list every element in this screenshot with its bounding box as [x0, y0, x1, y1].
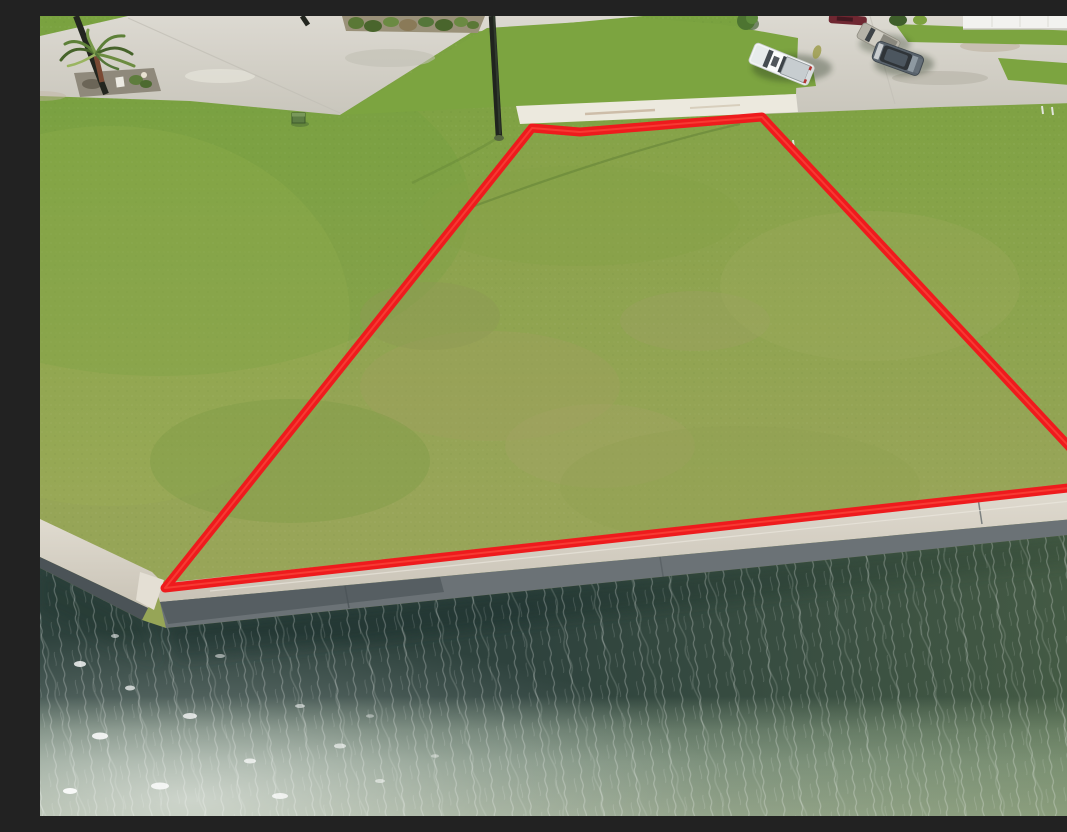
glint — [431, 754, 439, 758]
glint — [272, 793, 288, 799]
house-roofline — [963, 16, 1067, 29]
island-shrub — [348, 17, 364, 29]
glint — [92, 733, 108, 740]
glint — [375, 779, 385, 783]
glint — [215, 654, 225, 658]
glint — [151, 783, 169, 790]
box-top — [292, 113, 305, 117]
glint — [366, 714, 374, 718]
pole-base — [494, 135, 504, 141]
small-tree — [737, 16, 759, 30]
grass-patch — [420, 166, 740, 266]
island-rock — [399, 19, 417, 31]
glint — [111, 634, 119, 638]
island-shrub — [454, 17, 468, 27]
house-wall — [963, 16, 1067, 29]
bed-ornament — [115, 76, 124, 87]
pavement-stain — [345, 49, 435, 67]
dark-green-patch — [150, 399, 430, 523]
glint — [74, 661, 86, 667]
island-shrub — [383, 17, 399, 27]
pavement-highlight — [185, 69, 255, 83]
survey-stake — [1052, 107, 1053, 115]
island-shrub — [364, 20, 382, 32]
glint — [63, 788, 77, 794]
bed-shrub — [140, 80, 152, 88]
glint — [244, 759, 256, 764]
glint — [295, 704, 305, 708]
glint — [334, 744, 346, 749]
island-shrub — [467, 21, 479, 29]
island-shrub — [435, 19, 453, 31]
survey-stake — [1042, 106, 1043, 114]
glint — [183, 713, 197, 719]
landscape-island — [342, 16, 485, 33]
glint — [125, 686, 135, 691]
bed-flower-pot — [141, 72, 147, 78]
aerial-photo-canvas — [40, 16, 1067, 816]
aerial-photo — [40, 16, 1067, 816]
island-shrub — [418, 17, 434, 27]
